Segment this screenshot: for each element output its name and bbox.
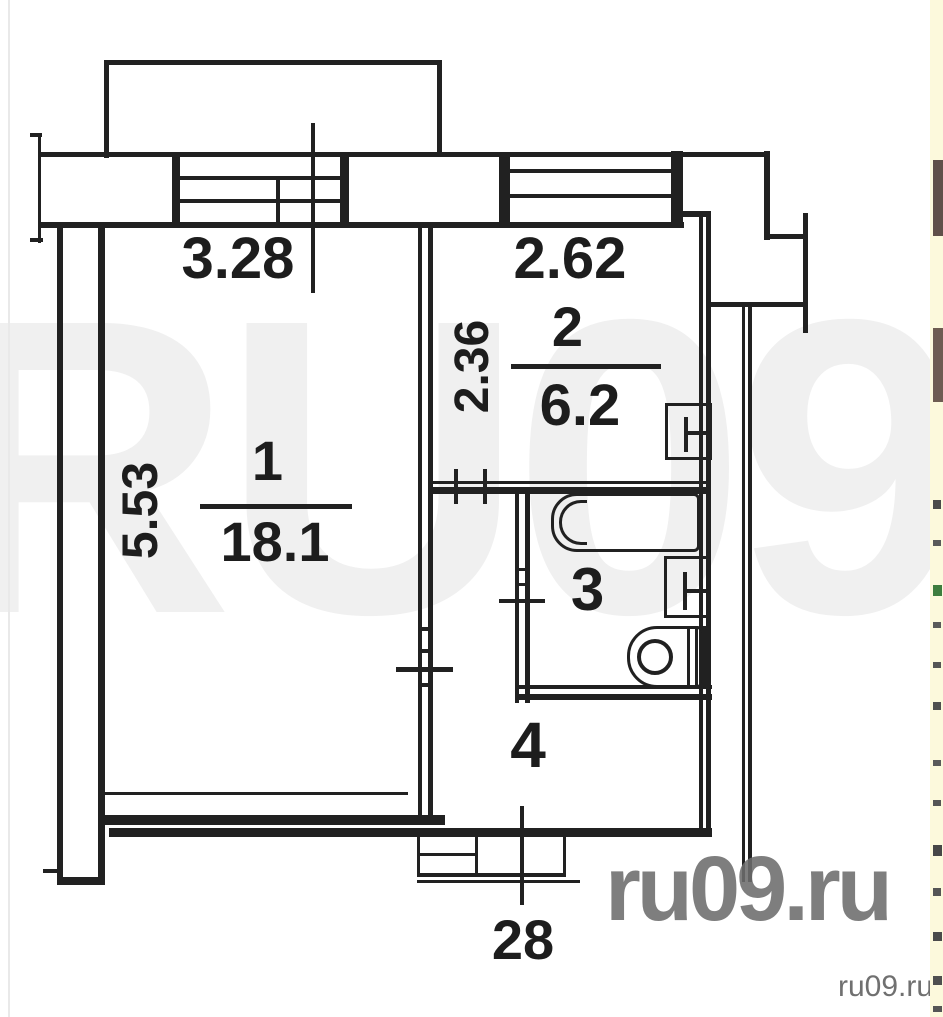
entry-threshold-line bbox=[417, 880, 580, 883]
toilet-seat-circle bbox=[637, 639, 673, 675]
bathroom-sink-tap-h bbox=[683, 589, 710, 593]
side-strip-fragment bbox=[933, 500, 941, 509]
wall-room1-bottom-thin bbox=[104, 792, 408, 795]
door-room1-jamb-b bbox=[418, 649, 433, 653]
wall-left-bottom-cap bbox=[57, 877, 105, 885]
toilet-tank-line-c bbox=[703, 626, 706, 688]
wall-room1-right-a bbox=[418, 225, 422, 821]
door-bath-tick bbox=[499, 599, 545, 603]
room2-number: 2 bbox=[535, 296, 600, 358]
room1-number: 1 bbox=[230, 430, 305, 492]
side-strip-fragment bbox=[933, 932, 942, 941]
wall-bath-left-a bbox=[515, 487, 519, 703]
door-bath-jamb-a bbox=[515, 568, 530, 571]
door-room1-tick bbox=[396, 667, 453, 672]
wall-room1-bottom-thick bbox=[104, 815, 445, 825]
room1-fraction-line bbox=[200, 504, 352, 509]
entry-box-divider-b bbox=[563, 837, 566, 877]
wall-top-left-edge bbox=[38, 133, 41, 243]
dim-kitchen-depth: 2.36 bbox=[445, 274, 500, 459]
partition-tick-b bbox=[483, 469, 487, 504]
window-room1-line-a bbox=[180, 176, 340, 180]
wall-left-outer-a bbox=[57, 225, 63, 885]
room2-fraction-line bbox=[511, 364, 661, 369]
side-strip-fragment bbox=[933, 585, 942, 596]
room3-number: 3 bbox=[550, 556, 625, 624]
window-room1-line-b bbox=[180, 199, 340, 203]
kitchen-sink-tap-h bbox=[684, 431, 710, 435]
floorplan-page: RU09 bbox=[0, 0, 943, 1017]
balcony-top bbox=[104, 60, 442, 65]
window-kitchen-line-b bbox=[510, 194, 671, 198]
side-strip-fragment bbox=[933, 976, 942, 985]
dim-entry-width: 28 bbox=[473, 908, 573, 972]
dim-room1-depth: 5.53 bbox=[113, 418, 168, 603]
wall-step-vertical bbox=[764, 151, 770, 240]
wall-step-horizontal bbox=[764, 234, 808, 239]
dim-kitchen-width: 2.62 bbox=[500, 226, 640, 292]
wall-bottom-outer bbox=[109, 828, 712, 837]
wall-bath-bottom-b bbox=[515, 694, 712, 700]
wall-top-outer bbox=[38, 152, 770, 157]
room2-area: 6.2 bbox=[515, 372, 645, 440]
wall-left-outer-b bbox=[98, 225, 105, 885]
wall-right-outer-b bbox=[748, 305, 752, 882]
window-room1-divider bbox=[276, 176, 280, 226]
side-strip-fragment bbox=[933, 702, 941, 710]
wall-bath-left-b bbox=[525, 487, 530, 703]
side-strip-fragment bbox=[933, 160, 943, 236]
side-strip-fragment bbox=[933, 662, 941, 668]
room4-number: 4 bbox=[488, 706, 568, 784]
tick-left-bottom bbox=[43, 869, 57, 873]
watermark-large: ru09.ru bbox=[605, 843, 889, 935]
door-bath-jamb-b bbox=[515, 583, 530, 586]
door-room1-jamb-a bbox=[418, 627, 433, 631]
side-strip-fragment bbox=[933, 1006, 942, 1012]
entry-box-midline bbox=[419, 853, 476, 856]
partition-tick-a bbox=[454, 469, 458, 504]
toilet-tank-line-a bbox=[687, 626, 690, 688]
entry-box-bottom bbox=[417, 873, 566, 877]
balcony-right bbox=[437, 60, 442, 153]
partition-kitchen-thin bbox=[432, 481, 711, 484]
bathroom-sink-icon bbox=[664, 556, 711, 618]
entry-door-axis bbox=[520, 806, 524, 905]
window-room1-jamb-right bbox=[340, 157, 349, 226]
page-edge-line bbox=[8, 0, 10, 1017]
tick-top-left-upper bbox=[30, 133, 42, 137]
wall-right-outer-a bbox=[742, 305, 745, 882]
toilet-tank-line-b bbox=[695, 626, 698, 688]
side-strip-fragment bbox=[933, 800, 941, 806]
room1-area: 18.1 bbox=[200, 510, 350, 574]
wall-room1-right-b bbox=[428, 225, 433, 821]
side-strip-fragment bbox=[933, 760, 941, 766]
dim-room1-width: 3.28 bbox=[158, 226, 318, 292]
window-kitchen-line-a bbox=[510, 169, 671, 173]
side-strip-fragment bbox=[933, 845, 942, 856]
wall-inner-right-b bbox=[706, 213, 711, 830]
wall-step-tick bbox=[803, 213, 808, 333]
side-strip-fragment bbox=[933, 540, 941, 546]
balcony-left bbox=[104, 60, 109, 158]
watermark-corner: ru09.ru bbox=[838, 972, 933, 1002]
door-room1-jamb-c bbox=[418, 683, 433, 687]
window-kitchen-jamb-left bbox=[499, 154, 510, 226]
side-strip-fragment bbox=[933, 622, 941, 628]
entry-box-divider-a bbox=[475, 837, 478, 877]
wall-niche-bottom bbox=[707, 302, 808, 307]
tick-top-left-lower bbox=[30, 238, 43, 242]
entry-box-left bbox=[417, 837, 420, 877]
side-strip-fragment bbox=[933, 328, 943, 402]
side-strip-fragment bbox=[933, 888, 941, 896]
window-room1-jamb-left bbox=[172, 157, 180, 226]
